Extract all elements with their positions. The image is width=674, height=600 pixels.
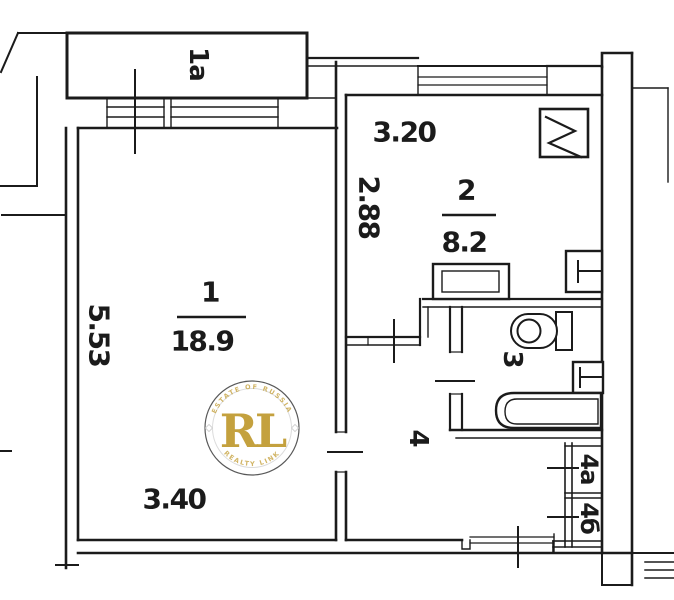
room1-number: 1 [201,276,219,309]
room1-area: 18.9 [170,325,233,358]
basin-bath-icon [573,362,603,393]
watermark-monogram: RL [220,404,287,458]
room3-number: 3 [497,350,527,367]
closet-a-label: 4a [575,454,603,485]
dim-room1-width: 3.40 [142,483,206,516]
watermark-logo: ESTATE OF RUSSIA REALTY LINK RL [205,381,299,475]
bathtub-icon [496,393,601,428]
floor-plan: 1a 3.20 2.88 2 8.2 1 18.9 5.53 3.40 3 4 … [0,0,674,600]
toilet-icon [511,312,572,350]
dim-room1-height: 5.53 [83,303,116,366]
basin-kitchen-icon [566,251,602,292]
balcony-label: 1a [183,47,213,81]
hall-number: 4 [403,429,433,446]
closet-b-label: 4б [575,502,603,534]
dim-room2-height: 2.88 [353,175,386,238]
dim-room2-width: 3.20 [372,116,436,149]
stove-icon [433,264,509,299]
floor-plan-svg: 1a 3.20 2.88 2 8.2 1 18.9 5.53 3.40 3 4 … [0,0,674,600]
room2-area: 8.2 [441,226,486,259]
sink-icon [540,109,588,157]
room2-number: 2 [457,174,475,207]
